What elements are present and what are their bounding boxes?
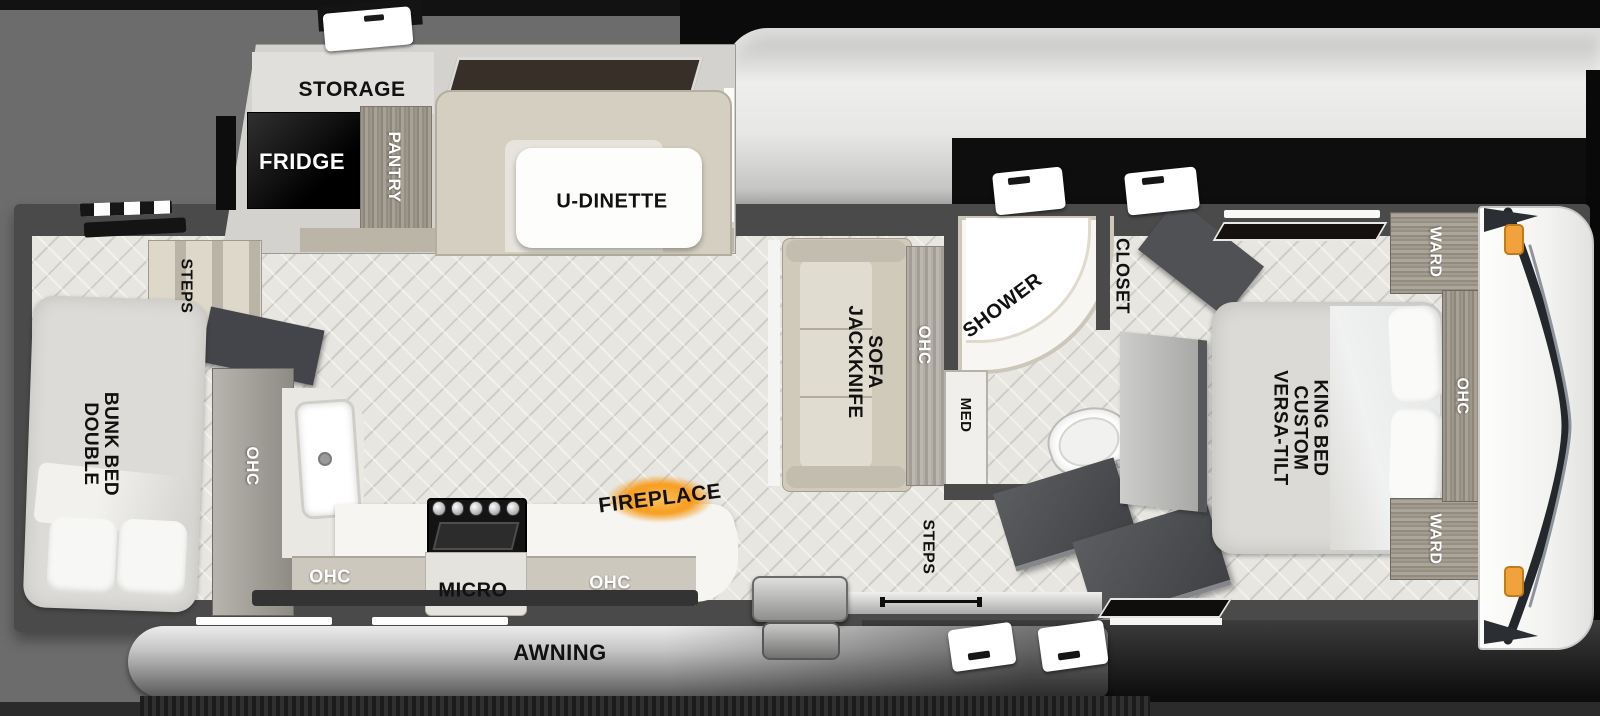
closet-wall-stub <box>1096 214 1110 330</box>
window-strip <box>196 617 332 625</box>
entry-door-jamb <box>880 597 885 607</box>
sofa-ohc-cabinet <box>906 246 946 486</box>
pantry-label-text: PANTRY <box>385 132 403 203</box>
bedroom-ohc-label-text: OHC <box>1453 377 1470 414</box>
stove-knobs <box>432 501 520 516</box>
stove-knob-icon <box>432 501 446 516</box>
stove-knob-icon <box>451 501 465 516</box>
awning-fabric-texture <box>140 696 1150 716</box>
sink-drain-icon <box>318 452 332 466</box>
stove-knob-icon <box>506 501 520 516</box>
wardrobe-top-label-text: WARD <box>1426 227 1443 278</box>
window-strip <box>1224 210 1380 218</box>
entry-fold-step <box>762 622 840 660</box>
kitchen-tall-cabinet <box>212 368 294 616</box>
micro-label: MICRO <box>438 580 507 603</box>
marker-light-icon <box>1504 224 1524 255</box>
king-bed-label-line1: VERSA-TILT <box>1270 370 1290 485</box>
sofa-armrest <box>786 240 906 262</box>
bed-pillow <box>1388 407 1443 505</box>
jackknife-sofa-label-line1: JACKKNIFE <box>844 305 864 418</box>
kitchen-tall-ohc-label: OHC <box>243 446 261 485</box>
window-strip <box>1110 618 1222 625</box>
med-label: MED <box>957 398 973 433</box>
marker-light-icon <box>1504 566 1524 597</box>
window <box>323 6 414 52</box>
entry-steps-label: STEPS <box>919 520 936 575</box>
window <box>1124 166 1200 215</box>
window-tinted <box>1098 598 1232 618</box>
stove-knob-icon <box>488 501 502 516</box>
slide-trim-black <box>216 116 236 210</box>
wardrobe-bottom-label-text: WARD <box>1426 514 1443 565</box>
bath-bedroom-divider-wall <box>1120 331 1207 512</box>
kitchen-tall-ohc-label-text: OHC <box>243 446 261 485</box>
front-cap-swoosh-graphics <box>1478 206 1590 646</box>
wardrobe-bottom-label: WARD <box>1426 514 1443 565</box>
king-bed-label-line2: CUSTOM <box>1290 386 1310 471</box>
kitchen-left-ohc-label: OHC <box>309 567 351 588</box>
entry-door-swing <box>884 600 980 603</box>
entry-door-jamb <box>977 597 982 607</box>
double-bunk-label-line2: BUNK BED <box>100 392 120 496</box>
closet-label-text: CLOSET <box>1113 238 1132 314</box>
sofa-ohc-label: OHC <box>915 325 933 364</box>
floorplan-canvas: STORAGE FRIDGE PANTRY U-DINETTE JACKKNIF… <box>0 0 1600 716</box>
window <box>992 166 1066 215</box>
bed-pillow <box>1388 305 1445 404</box>
bedroom-ohc-label: OHC <box>1453 377 1470 414</box>
double-bunk-label-line1: DOUBLE <box>80 402 100 485</box>
window <box>1037 620 1108 673</box>
u-dinette-label: U-DINETTE <box>556 191 667 214</box>
window-tinted <box>447 57 704 94</box>
kitchen-right-ohc-label: OHC <box>589 573 631 594</box>
stove-knob-icon <box>469 501 483 516</box>
jackknife-sofa-label-line2: SOFA <box>864 335 884 389</box>
window <box>947 622 1016 672</box>
window-strip <box>372 617 508 625</box>
bunk-pillow <box>46 516 118 595</box>
sofa-ohc-label-text: OHC <box>915 325 933 364</box>
king-bed-label-line3: KING BED <box>1310 380 1330 477</box>
pantry-label: PANTRY <box>385 132 403 203</box>
jackknife-sofa-label: JACKKNIFE SOFA <box>844 305 884 418</box>
bunk-pillow <box>116 518 188 597</box>
king-bed-label: VERSA-TILT CUSTOM KING BED <box>1270 370 1329 485</box>
sofa-slide-edge <box>768 240 780 486</box>
stove-oven-window <box>433 522 520 550</box>
closet-label: CLOSET <box>1113 238 1132 314</box>
entry-steps-label-text: STEPS <box>919 520 936 575</box>
double-bunk-bed-label: DOUBLE BUNK BED <box>80 392 120 496</box>
entry-fold-step <box>752 576 848 622</box>
storage-label: STORAGE <box>299 78 406 102</box>
fridge-label: FRIDGE <box>259 149 345 175</box>
rear-steps-label: STEPS <box>177 259 194 314</box>
sofa-armrest <box>786 466 906 488</box>
window-tinted <box>1213 222 1388 241</box>
wardrobe-top-label: WARD <box>1426 227 1443 278</box>
med-label-text: MED <box>957 398 973 433</box>
rear-steps-label-text: STEPS <box>177 259 194 314</box>
awning-label: AWNING <box>513 640 606 666</box>
